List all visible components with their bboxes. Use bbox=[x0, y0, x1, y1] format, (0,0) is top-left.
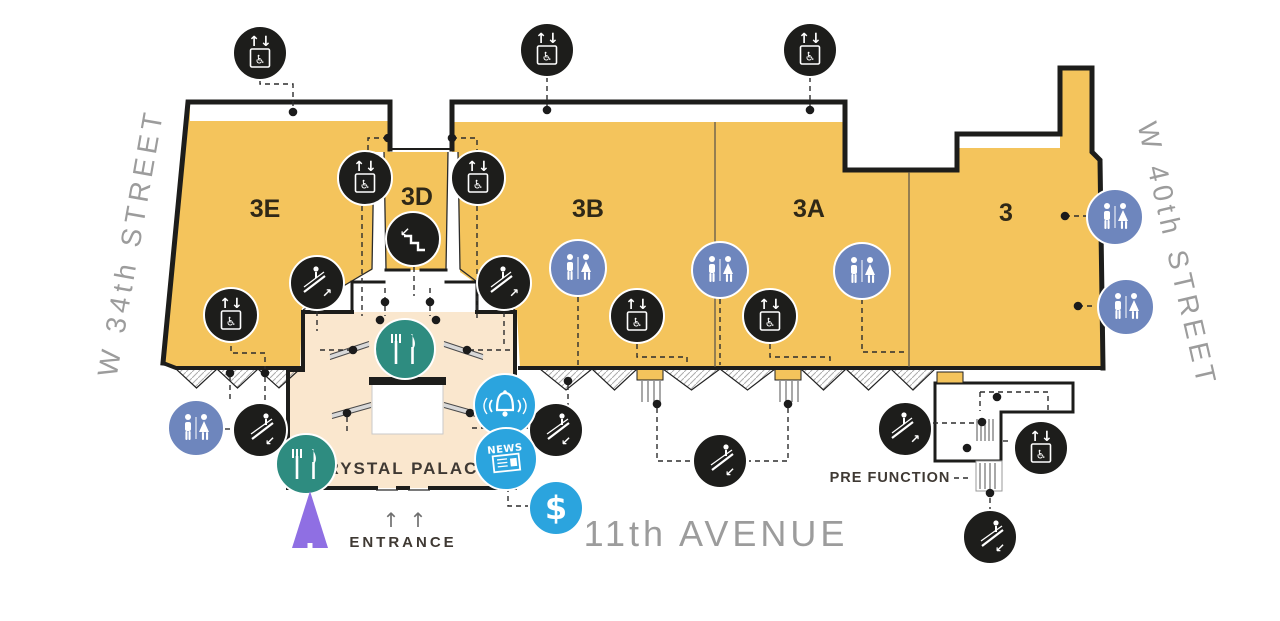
hall-label-3d: 3D bbox=[401, 183, 433, 211]
hall-label-3b: 3B bbox=[572, 195, 604, 223]
dock-tab bbox=[637, 369, 663, 380]
elevator-icon bbox=[233, 26, 287, 80]
elevator-icon bbox=[1014, 421, 1068, 475]
elevator-icon bbox=[451, 151, 505, 205]
atrium-opening bbox=[372, 384, 443, 434]
elevator-icon bbox=[610, 289, 664, 343]
elevator-icon bbox=[783, 23, 837, 77]
entrance-arrow-icon: ↑ bbox=[383, 508, 400, 532]
hall-label-3e: 3E bbox=[250, 195, 281, 223]
elevator-icon bbox=[520, 23, 574, 77]
floor-plan-map: ↑↓ ♿ ↙ ↗ ↙ bbox=[0, 0, 1280, 621]
dock-stairs bbox=[780, 381, 798, 402]
escalator-down-icon bbox=[693, 434, 747, 488]
restroom-icon bbox=[834, 243, 890, 299]
street-label-11th-ave: 11th AVENUE bbox=[584, 513, 849, 554]
location-marker-icon bbox=[292, 491, 328, 548]
top-aisle-band bbox=[452, 104, 845, 122]
dock-tab bbox=[775, 369, 801, 380]
hall-label-3a: 3A bbox=[793, 195, 825, 223]
elevator-icon bbox=[338, 151, 392, 205]
entrance-arrow-icon: ↑ bbox=[410, 508, 427, 532]
top-aisle-band bbox=[957, 136, 1060, 148]
hall-label-3: 3 bbox=[999, 199, 1013, 227]
restroom-icon bbox=[1087, 189, 1143, 245]
stairs-icon bbox=[386, 212, 440, 266]
restroom-icon bbox=[1098, 279, 1154, 335]
restroom-icon bbox=[168, 400, 224, 456]
pre-function-label: PRE FUNCTION bbox=[830, 470, 951, 486]
restaurant-icon bbox=[375, 319, 435, 379]
street-label-w34: W 34th STREET bbox=[92, 106, 170, 379]
crystal-palace-label: CRYSTAL PALACE bbox=[312, 459, 491, 478]
restroom-icon bbox=[550, 240, 606, 296]
atm-icon bbox=[529, 481, 583, 535]
restaurant-icon bbox=[276, 434, 336, 494]
newsstand-icon bbox=[475, 428, 537, 490]
elevator-icon bbox=[743, 289, 797, 343]
escalator-down-icon bbox=[963, 510, 1017, 564]
escalator-up-icon bbox=[477, 256, 531, 310]
escalator-up-icon bbox=[290, 256, 344, 310]
pre-function-stairs bbox=[976, 419, 1002, 491]
dock-stairs bbox=[642, 381, 660, 402]
street-label-w40: W 40th STREET bbox=[1132, 119, 1223, 391]
escalator-down-icon bbox=[233, 403, 287, 457]
restroom-icon bbox=[692, 242, 748, 298]
escalator-up-icon bbox=[878, 402, 932, 456]
escalator-down-icon bbox=[529, 403, 583, 457]
entrance-label: ENTRANCE bbox=[349, 534, 456, 551]
elevator-icon bbox=[204, 288, 258, 342]
floor-plan-page: ↑↓ ♿ ↙ ↗ ↙ bbox=[0, 0, 1280, 621]
pre-function-dock-tab bbox=[937, 372, 963, 383]
bell-icon bbox=[474, 374, 536, 436]
